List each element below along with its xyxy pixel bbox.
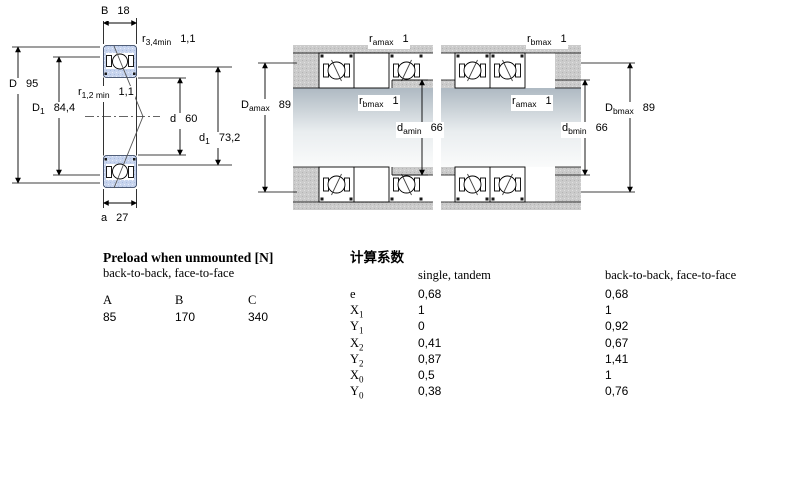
dim-subscript: bmax <box>531 37 552 47</box>
mounting-diagrams: ramax1 Damax89 rbmax1 damin66 rbmax1 ram… <box>240 30 670 215</box>
dim-symbol: a <box>101 212 107 224</box>
preload-value-C: 340 <box>248 310 353 324</box>
dim-subscript: 1 <box>205 136 210 146</box>
factors-row-Y0: Y0 0,38 0,76 <box>345 384 800 400</box>
dim-subscript: amax <box>516 99 537 109</box>
preload-col-B: B <box>175 293 248 307</box>
dim-symbol: D <box>605 102 613 114</box>
dim-symbol: D <box>241 99 249 111</box>
dim-value: 1,1 <box>119 86 134 98</box>
dim-label-r34: r3,4min1,1 <box>141 33 196 49</box>
dim-value: 73,2 <box>219 132 240 144</box>
dim-subscript: 3,4min <box>146 37 172 47</box>
dim-value: 1,1 <box>180 33 195 45</box>
dim-subscript: bmin <box>568 126 586 136</box>
factors-row-Y1: Y1 0 0,92 <box>345 319 800 335</box>
dim-label-rbmax-1: rbmax1 <box>358 95 400 111</box>
factors-col-single-tandem: single, tandem <box>418 268 605 283</box>
dim-symbol: D <box>32 102 40 114</box>
factors-title: 计算系数 <box>350 250 800 266</box>
dim-value: 84,4 <box>54 102 75 114</box>
dim-label-D1: D184,4 <box>31 102 76 118</box>
dim-label-Dbmax: Dbmax89 <box>604 102 656 118</box>
factors-table: single, tandem back-to-back, face-to-fac… <box>345 268 800 400</box>
factors-row-Y2: Y2 0,87 1,41 <box>345 352 800 368</box>
dim-value: 27 <box>116 212 128 224</box>
preload-value-row: 85 170 340 <box>103 310 353 324</box>
dim-subscript: 1 <box>40 106 45 116</box>
dim-value: 1 <box>545 95 551 107</box>
preload-value-A: 85 <box>103 310 175 324</box>
dim-symbol: d <box>170 113 176 125</box>
preload-subtitle: back-to-back, face-to-face <box>103 266 353 281</box>
preload-title: Preload when unmounted [N] <box>103 250 353 266</box>
dim-value: 18 <box>117 5 129 17</box>
dim-label-ramax-1: ramax1 <box>368 33 410 49</box>
dim-value: 66 <box>596 122 608 134</box>
dim-label-r12: r1,2 min1,1 <box>77 86 135 102</box>
dim-value: 1 <box>392 95 398 107</box>
bearing-cross-section-drawing: B18 r3,4min1,1 D95 D184,4 r1,2 min1,1 d6… <box>0 0 240 230</box>
bearing-bottom-section <box>104 156 137 188</box>
dim-subscript: amax <box>249 103 270 113</box>
preload-col-A: A <box>103 293 175 307</box>
dim-subscript: bmax <box>363 99 384 109</box>
factors-header-row: single, tandem back-to-back, face-to-fac… <box>345 268 800 287</box>
preload-section: Preload when unmounted [N] back-to-back,… <box>103 250 353 324</box>
dim-label-ramax-2: ramax1 <box>511 95 553 111</box>
preload-col-C: C <box>248 293 353 307</box>
dim-value: 1 <box>402 33 408 45</box>
dim-value: 89 <box>643 102 655 114</box>
dim-symbol: B <box>101 5 108 17</box>
dim-value: 60 <box>185 113 197 125</box>
preload-value-B: 170 <box>175 310 248 324</box>
dim-label-Damax: Damax89 <box>240 99 292 115</box>
factors-row-e: e 0,68 0,68 <box>345 287 800 303</box>
dim-label-dbmin: dbmin66 <box>561 122 609 138</box>
dim-subscript: bmax <box>613 106 634 116</box>
dim-label-damin: damin66 <box>396 122 444 138</box>
dim-label-rbmax-2: rbmax1 <box>526 33 568 49</box>
dim-label-a: a27 <box>100 212 129 228</box>
calculation-factors-section: 计算系数 single, tandem back-to-back, face-t… <box>345 250 800 400</box>
dim-value: 89 <box>279 99 291 111</box>
dim-subscript: amin <box>403 126 421 136</box>
dim-subscript: amax <box>373 37 394 47</box>
dim-value: 95 <box>26 78 38 90</box>
bearing-datasheet-page: B18 r3,4min1,1 D95 D184,4 r1,2 min1,1 d6… <box>0 0 800 500</box>
factors-row-X2: X2 0,41 0,67 <box>345 336 800 352</box>
dim-value: 1 <box>560 33 566 45</box>
dim-label-d1: d173,2 <box>198 132 241 148</box>
dim-label-d: d60 <box>169 113 198 129</box>
dim-label-B: B18 <box>100 5 131 21</box>
dim-value: 66 <box>431 122 443 134</box>
dim-label-D: D95 <box>8 78 39 94</box>
factors-row-X1: X1 1 1 <box>345 303 800 319</box>
factors-row-X0: X0 0,5 1 <box>345 368 800 384</box>
factors-col-paired: back-to-back, face-to-face <box>605 268 800 283</box>
dim-subscript: 1,2 min <box>82 90 110 100</box>
dim-symbol: D <box>9 78 17 90</box>
preload-header-row: A B C <box>103 293 353 307</box>
